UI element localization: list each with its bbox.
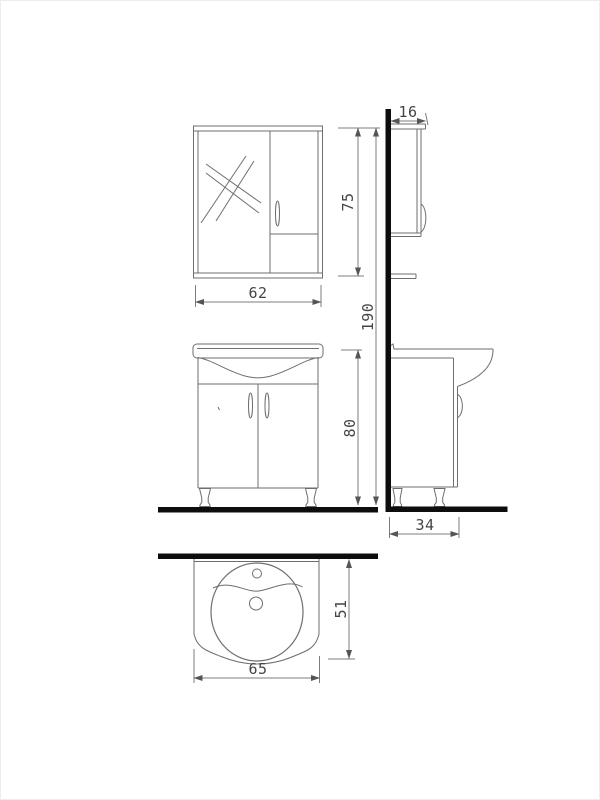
wall-section-line bbox=[386, 109, 392, 512]
basin-width-value: 65 bbox=[248, 660, 267, 678]
floor-line-side-view bbox=[386, 507, 508, 513]
mirror-height-value: 75 bbox=[339, 192, 357, 211]
technical-drawing-page: 62 75 190 16 bbox=[0, 0, 600, 800]
side-vanity-handle bbox=[458, 394, 463, 418]
basin-front-curve bbox=[198, 358, 319, 378]
front-view-mirror-cabinet bbox=[194, 126, 323, 278]
door-keyhole-mark bbox=[218, 407, 220, 410]
dim-basin-depth: 51 bbox=[328, 560, 355, 660]
mirror-width-value: 62 bbox=[248, 284, 267, 302]
mirror-cabinet-outline bbox=[194, 126, 323, 278]
side-cabinet-handle bbox=[421, 204, 426, 232]
dim-vanity-height: 80 bbox=[341, 350, 362, 505]
technical-drawing: 62 75 190 16 bbox=[1, 1, 599, 799]
dim-total-height: 190 bbox=[359, 128, 377, 505]
vanity-front-left-leg bbox=[200, 489, 211, 507]
vanity-side-back-leg bbox=[393, 489, 402, 507]
total-height-value: 190 bbox=[359, 303, 377, 332]
front-view-vanity-cabinet bbox=[193, 344, 323, 507]
side-view-vanity-cabinet bbox=[391, 344, 493, 507]
basin-inner-curve bbox=[213, 584, 303, 591]
basin-depth-value: 51 bbox=[332, 599, 350, 618]
drain-hole bbox=[250, 597, 263, 610]
wall-line-top-view bbox=[158, 554, 378, 560]
vanity-height-value: 80 bbox=[341, 418, 359, 437]
vanity-side-front-leg bbox=[434, 489, 445, 507]
dim-mirror-height: 75 bbox=[338, 128, 380, 276]
side-view-mirror-cabinet: 16 bbox=[391, 103, 428, 279]
dim-vanity-depth: 34 bbox=[390, 516, 460, 538]
basin-rim-front bbox=[193, 344, 323, 358]
mirror-door-handle bbox=[276, 201, 280, 226]
faucet-hole bbox=[253, 569, 262, 578]
dim-mirror-width: 62 bbox=[196, 284, 322, 307]
vanity-left-door-handle bbox=[249, 393, 253, 418]
mirror-hatch-lines bbox=[201, 156, 261, 223]
mirror-depth-value: 16 bbox=[398, 103, 417, 121]
dim-mirror-depth: 16 bbox=[391, 103, 428, 125]
floor-line-front-view bbox=[158, 507, 378, 513]
vanity-right-door-handle bbox=[265, 393, 269, 418]
side-basin-rim-top bbox=[391, 344, 493, 349]
vanity-front-right-leg bbox=[306, 489, 317, 507]
side-basin-bowl-curve bbox=[458, 349, 494, 387]
dim-basin-width: 65 bbox=[194, 649, 320, 683]
vanity-depth-value: 34 bbox=[415, 516, 434, 534]
